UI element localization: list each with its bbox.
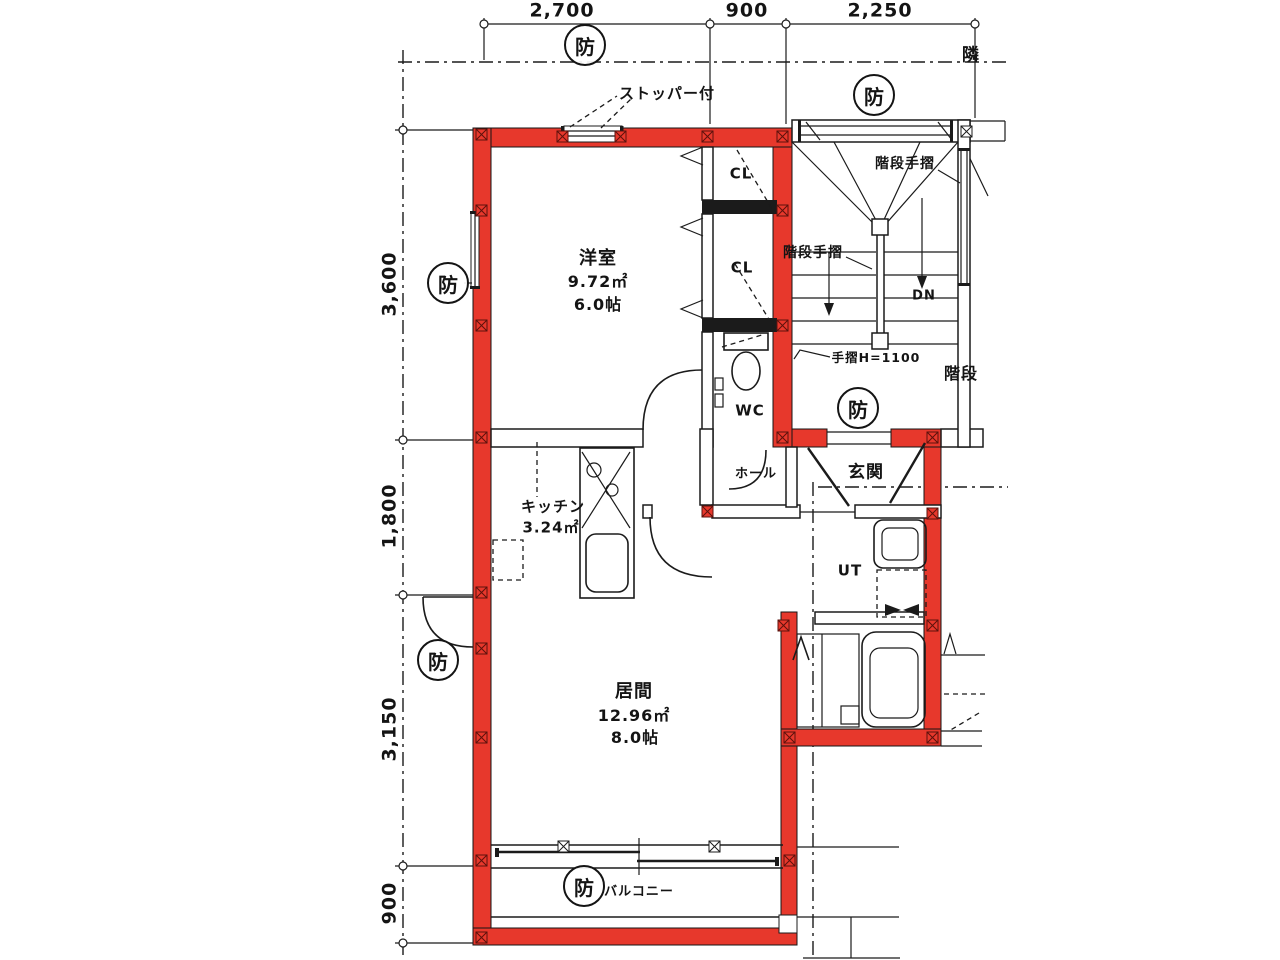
kitchen-counter: [580, 448, 634, 598]
dim-top-3: 2,250: [847, 2, 912, 21]
fire-mark-top-right: 防: [853, 74, 895, 116]
fire-mark-label: 防: [428, 646, 448, 675]
closet-shelf: [702, 318, 777, 332]
fire-mark-label: 防: [864, 81, 884, 110]
western-room-door: [643, 370, 702, 430]
wc-label: WC: [735, 404, 765, 419]
living-door: [650, 517, 712, 577]
living-area: 12.96㎡: [598, 708, 671, 724]
balcony-label: バルコニー: [604, 886, 674, 899]
handrail-height-note: 手摺H=1100: [832, 352, 921, 365]
ut-label: UT: [838, 564, 862, 579]
neighbor-note: 隣: [962, 48, 980, 65]
dim-left-4: 900: [381, 882, 400, 925]
top-window: [564, 126, 622, 142]
fire-mark-label: 防: [438, 269, 458, 298]
fire-mark-balcony: 防: [563, 865, 605, 907]
kitchen-sink: [586, 534, 628, 592]
dim-top-1: 2,700: [529, 2, 594, 21]
closet-lower-label: CL: [731, 261, 754, 276]
floorplan-drawing: [0, 0, 1280, 960]
stair-handrail: [877, 226, 884, 340]
floorplan-canvas: 2,700 900 2,250 3,600 1,800 3,150 900 防 …: [0, 0, 1280, 960]
kitchen-name: キッチン: [521, 500, 585, 515]
balcony-corner-post: [779, 915, 797, 933]
fire-mark-label: 防: [848, 394, 868, 423]
stair-handrail-note-lower: 階段手摺: [783, 246, 843, 260]
refrigerator-space: [493, 540, 523, 580]
dim-left-1: 3,600: [381, 251, 400, 316]
down-label: DN: [912, 290, 936, 303]
fire-mark-entrance: 防: [837, 387, 879, 429]
stair-handrail-note-upper: 階段手摺: [875, 157, 935, 171]
kitchen-area: 3.24㎡: [522, 521, 579, 536]
living-name: 居間: [615, 683, 653, 701]
fire-mark-label: 防: [575, 31, 595, 60]
entrance-label: 玄関: [848, 465, 884, 482]
western-room-size: 6.0帖: [574, 297, 622, 313]
dim-left-2: 1,800: [381, 483, 400, 548]
stopper-note: ストッパー付: [619, 87, 715, 102]
western-room-area: 9.72㎡: [568, 274, 628, 290]
hall-label: ホール: [735, 468, 777, 481]
stairs-label: 階段: [944, 366, 978, 382]
closet-shelf: [702, 200, 777, 214]
balcony: [491, 838, 783, 917]
fire-mark-left-lower: 防: [417, 639, 459, 681]
toilet-bowl: [732, 352, 760, 390]
fire-mark-left-upper: 防: [427, 262, 469, 304]
fire-mark-label: 防: [574, 872, 594, 901]
closet-upper-label: CL: [730, 167, 753, 182]
fire-mark-top-left: 防: [564, 24, 606, 66]
dim-top-2: 900: [726, 2, 769, 21]
living-size: 8.0帖: [611, 730, 659, 746]
western-room-name: 洋室: [579, 250, 617, 268]
dim-left-3: 3,150: [381, 696, 400, 761]
toilet-tank: [724, 333, 768, 350]
